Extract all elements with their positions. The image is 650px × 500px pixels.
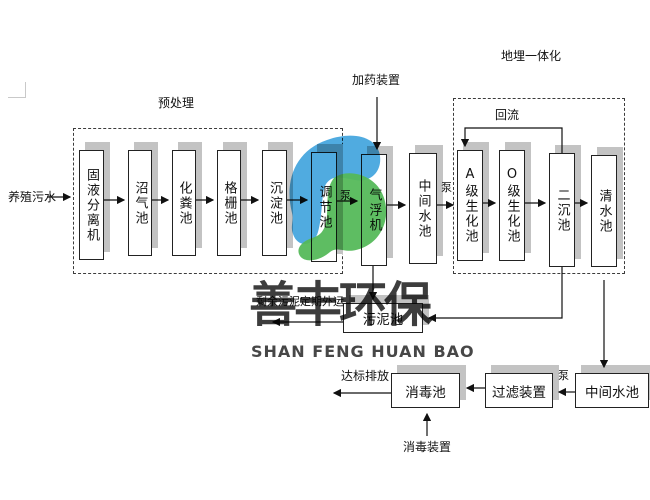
flow-arrows (0, 0, 650, 500)
process-flow-diagram: 固液分离机 沼气池 化粪池 格栅池 沉淀池 调节池 气浮机 中间水池 A级生化池… (0, 0, 650, 500)
